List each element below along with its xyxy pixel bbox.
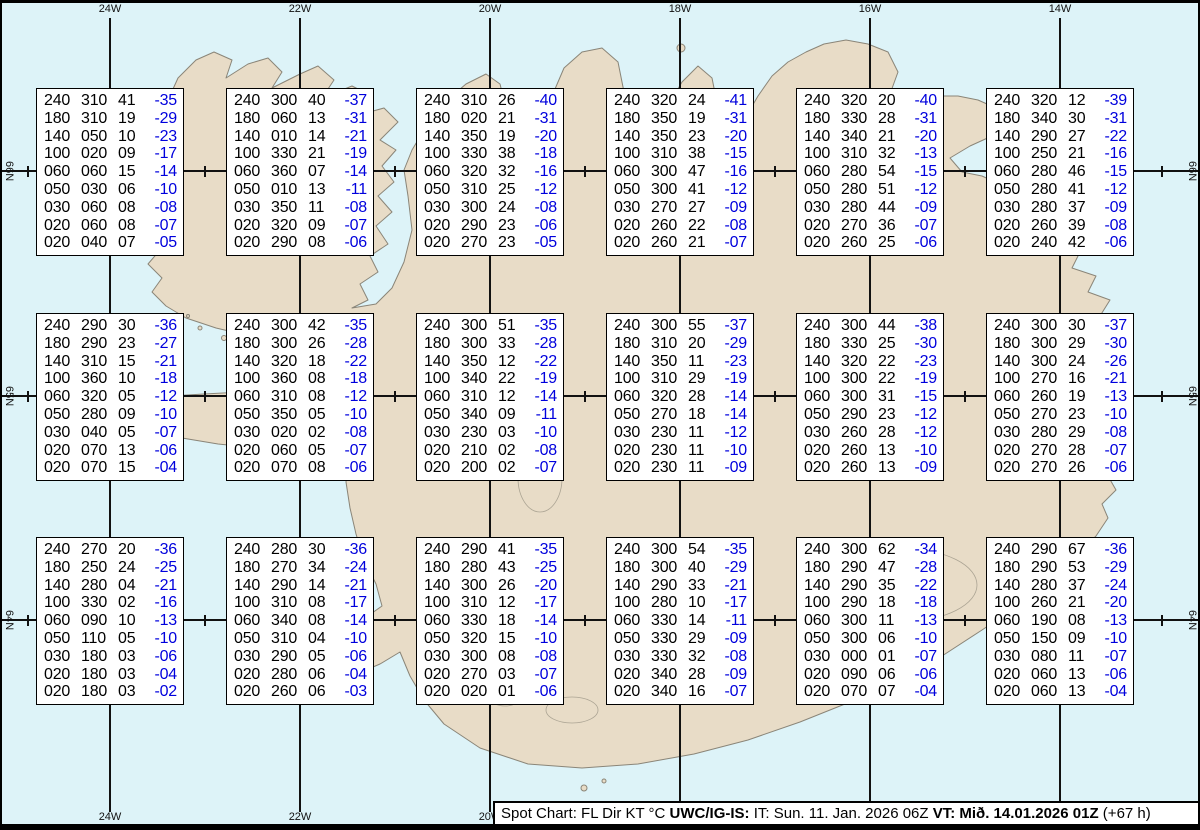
fl-value: 180 bbox=[234, 335, 263, 353]
dir-value: 310 bbox=[271, 630, 300, 648]
dir-value: 230 bbox=[651, 459, 680, 477]
dir-value: 300 bbox=[1031, 335, 1060, 353]
fl-value: 240 bbox=[614, 92, 643, 110]
level-row: 18033028-31 bbox=[804, 110, 937, 128]
temp-value: -18 bbox=[906, 594, 937, 612]
dir-value: 290 bbox=[271, 577, 300, 595]
fl-value: 020 bbox=[424, 683, 453, 701]
temp-value: -11 bbox=[526, 406, 557, 424]
fl-value: 020 bbox=[424, 217, 453, 235]
kt-value: 08 bbox=[308, 234, 328, 252]
level-row: 02032009-07 bbox=[234, 217, 367, 235]
island bbox=[602, 779, 606, 783]
kt-value: 21 bbox=[1068, 594, 1088, 612]
dir-value: 330 bbox=[81, 594, 110, 612]
kt-value: 05 bbox=[118, 424, 138, 442]
fl-value: 240 bbox=[424, 317, 453, 335]
latitude-label-right: 65N bbox=[1185, 381, 1198, 411]
dir-value: 320 bbox=[841, 353, 870, 371]
level-row: 14035011-23 bbox=[614, 353, 747, 371]
level-row: 10026021-20 bbox=[994, 594, 1127, 612]
temp-value: -06 bbox=[1096, 666, 1127, 684]
fl-value: 240 bbox=[614, 317, 643, 335]
level-row: 02026013-09 bbox=[804, 459, 937, 477]
temp-value: -35 bbox=[336, 317, 367, 335]
dir-value: 020 bbox=[81, 145, 110, 163]
dir-value: 000 bbox=[841, 648, 870, 666]
dir-value: 060 bbox=[81, 199, 110, 217]
kt-value: 03 bbox=[498, 424, 518, 442]
island bbox=[581, 785, 587, 791]
kt-value: 32 bbox=[878, 145, 898, 163]
temp-value: -36 bbox=[336, 541, 367, 559]
fl-value: 140 bbox=[804, 577, 833, 595]
fl-value: 140 bbox=[234, 128, 263, 146]
fl-value: 100 bbox=[234, 370, 263, 388]
fl-value: 020 bbox=[44, 442, 73, 460]
kt-value: 22 bbox=[878, 353, 898, 371]
kt-value: 20 bbox=[118, 541, 138, 559]
fl-value: 030 bbox=[994, 648, 1023, 666]
level-row: 14035019-20 bbox=[424, 128, 557, 146]
fl-value: 030 bbox=[614, 199, 643, 217]
kt-value: 01 bbox=[498, 683, 518, 701]
level-row: 02023011-09 bbox=[614, 459, 747, 477]
level-row: 02007008-06 bbox=[234, 459, 367, 477]
dir-value: 330 bbox=[651, 612, 680, 630]
fl-value: 100 bbox=[994, 370, 1023, 388]
level-row: 10036008-18 bbox=[234, 370, 367, 388]
level-row: 24030030-37 bbox=[994, 317, 1127, 335]
temp-value: -08 bbox=[526, 648, 557, 666]
kt-value: 09 bbox=[118, 145, 138, 163]
fl-value: 020 bbox=[804, 217, 833, 235]
fl-value: 050 bbox=[44, 181, 73, 199]
kt-value: 10 bbox=[118, 128, 138, 146]
dir-value: 070 bbox=[81, 459, 110, 477]
fl-value: 240 bbox=[44, 541, 73, 559]
graticule-cross-tick bbox=[770, 615, 781, 626]
level-row: 18030033-28 bbox=[424, 335, 557, 353]
temp-value: -10 bbox=[146, 406, 177, 424]
kt-value: 06 bbox=[118, 181, 138, 199]
fl-value: 240 bbox=[234, 92, 263, 110]
wind-temp-box-r2c2: 24030042-3518030026-2814032018-221003600… bbox=[226, 313, 374, 481]
level-row: 06028046-15 bbox=[994, 163, 1127, 181]
dir-value: 230 bbox=[651, 442, 680, 460]
wind-temp-box-r3c6: 24029067-3618029053-2914028037-241002602… bbox=[986, 537, 1134, 705]
kt-value: 11 bbox=[688, 424, 708, 442]
fl-value: 140 bbox=[44, 128, 73, 146]
level-row: 24032024-41 bbox=[614, 92, 747, 110]
latitude-label-left: 64N bbox=[2, 605, 15, 635]
temp-value: -12 bbox=[906, 424, 937, 442]
fl-value: 030 bbox=[994, 424, 1023, 442]
fl-value: 050 bbox=[424, 630, 453, 648]
fl-value: 060 bbox=[994, 388, 1023, 406]
wind-temp-box-r2c1: 24029030-3618029023-2714031015-211003601… bbox=[36, 313, 184, 481]
level-row: 02006005-07 bbox=[234, 442, 367, 460]
level-row: 24032020-40 bbox=[804, 92, 937, 110]
kt-value: 29 bbox=[1068, 335, 1088, 353]
kt-value: 34 bbox=[308, 559, 328, 577]
level-row: 03033032-08 bbox=[614, 648, 747, 666]
wind-temp-box-r1c1: 24031041-3518031019-2914005010-231000200… bbox=[36, 88, 184, 256]
temp-value: -17 bbox=[526, 594, 557, 612]
level-row: 05027023-10 bbox=[994, 406, 1127, 424]
dir-value: 250 bbox=[81, 559, 110, 577]
level-row: 03030024-08 bbox=[424, 199, 557, 217]
wind-temp-box-r2c3: 24030051-3518030033-2814035012-221003402… bbox=[416, 313, 564, 481]
dir-value: 310 bbox=[651, 370, 680, 388]
dir-value: 350 bbox=[651, 128, 680, 146]
kt-value: 08 bbox=[308, 388, 328, 406]
temp-value: -21 bbox=[336, 577, 367, 595]
level-row: 02002001-06 bbox=[424, 683, 557, 701]
level-row: 02027026-06 bbox=[994, 459, 1127, 477]
kt-value: 67 bbox=[1068, 541, 1088, 559]
dir-value: 350 bbox=[271, 199, 300, 217]
level-row: 03029005-06 bbox=[234, 648, 367, 666]
graticule-cross-tick bbox=[580, 615, 591, 626]
dir-value: 300 bbox=[271, 92, 300, 110]
fl-value: 140 bbox=[804, 353, 833, 371]
temp-value: -28 bbox=[336, 335, 367, 353]
dir-value: 340 bbox=[271, 612, 300, 630]
fl-value: 180 bbox=[234, 559, 263, 577]
level-row: 02027003-07 bbox=[424, 666, 557, 684]
graticule-cross-tick bbox=[580, 166, 591, 177]
dir-value: 300 bbox=[651, 163, 680, 181]
temp-value: -05 bbox=[526, 234, 557, 252]
level-row: 02034016-07 bbox=[614, 683, 747, 701]
dir-value: 290 bbox=[841, 594, 870, 612]
fl-value: 060 bbox=[614, 163, 643, 181]
level-row: 24030054-35 bbox=[614, 541, 747, 559]
kt-value: 21 bbox=[1068, 145, 1088, 163]
dir-value: 330 bbox=[651, 630, 680, 648]
kt-value: 28 bbox=[688, 666, 708, 684]
temp-value: -07 bbox=[1096, 648, 1127, 666]
fl-value: 060 bbox=[44, 612, 73, 630]
dir-value: 260 bbox=[841, 442, 870, 460]
fl-value: 020 bbox=[614, 683, 643, 701]
kt-value: 42 bbox=[1068, 234, 1088, 252]
kt-value: 13 bbox=[878, 459, 898, 477]
level-row: 03006008-08 bbox=[44, 199, 177, 217]
level-row: 18028043-25 bbox=[424, 559, 557, 577]
kt-value: 14 bbox=[688, 612, 708, 630]
level-row: 03028044-09 bbox=[804, 199, 937, 217]
kt-value: 14 bbox=[308, 128, 328, 146]
dir-value: 260 bbox=[271, 683, 300, 701]
dir-value: 300 bbox=[651, 559, 680, 577]
fl-value: 020 bbox=[804, 234, 833, 252]
temp-value: -30 bbox=[1096, 335, 1127, 353]
level-row: 02026022-08 bbox=[614, 217, 747, 235]
dir-value: 340 bbox=[461, 370, 490, 388]
dir-value: 330 bbox=[461, 612, 490, 630]
level-row: 03018003-06 bbox=[44, 648, 177, 666]
temp-value: -07 bbox=[336, 217, 367, 235]
temp-value: -17 bbox=[716, 594, 747, 612]
kt-value: 39 bbox=[1068, 217, 1088, 235]
level-row: 02018003-02 bbox=[44, 683, 177, 701]
kt-value: 30 bbox=[118, 317, 138, 335]
kt-value: 08 bbox=[1068, 612, 1088, 630]
fl-value: 140 bbox=[994, 353, 1023, 371]
dir-value: 310 bbox=[841, 145, 870, 163]
latitude-label-left: 65N bbox=[2, 381, 15, 411]
kt-value: 41 bbox=[1068, 181, 1088, 199]
lead-time-text: (+67 h) bbox=[1099, 805, 1151, 822]
level-row: 02018003-04 bbox=[44, 666, 177, 684]
temp-value: -29 bbox=[1096, 559, 1127, 577]
temp-value: -10 bbox=[336, 630, 367, 648]
kt-value: 23 bbox=[498, 234, 518, 252]
kt-value: 18 bbox=[308, 353, 328, 371]
temp-value: -07 bbox=[146, 424, 177, 442]
fl-value: 060 bbox=[804, 388, 833, 406]
dir-value: 210 bbox=[461, 442, 490, 460]
temp-value: -12 bbox=[716, 424, 747, 442]
level-row: 18031020-29 bbox=[614, 335, 747, 353]
temp-value: -23 bbox=[716, 353, 747, 371]
temp-value: -29 bbox=[716, 559, 747, 577]
level-row: 02007013-06 bbox=[44, 442, 177, 460]
level-row: 10033002-16 bbox=[44, 594, 177, 612]
kt-value: 19 bbox=[688, 110, 708, 128]
fl-value: 030 bbox=[234, 424, 263, 442]
temp-value: -10 bbox=[146, 181, 177, 199]
level-row: 24030051-35 bbox=[424, 317, 557, 335]
fl-value: 050 bbox=[614, 630, 643, 648]
wind-temp-box-r1c4: 24032024-4118035019-3114035023-201003103… bbox=[606, 88, 754, 256]
dir-value: 060 bbox=[81, 163, 110, 181]
fl-value: 020 bbox=[234, 683, 263, 701]
level-row: 02006013-04 bbox=[994, 683, 1127, 701]
kt-value: 44 bbox=[878, 317, 898, 335]
temp-value: -07 bbox=[336, 442, 367, 460]
dir-value: 260 bbox=[1031, 388, 1060, 406]
temp-value: -07 bbox=[526, 666, 557, 684]
level-row: 03000001-07 bbox=[804, 648, 937, 666]
kt-value: 24 bbox=[688, 92, 708, 110]
dir-value: 070 bbox=[841, 683, 870, 701]
temp-value: -04 bbox=[146, 459, 177, 477]
fl-value: 180 bbox=[994, 559, 1023, 577]
fl-value: 020 bbox=[234, 217, 263, 235]
dir-value: 060 bbox=[271, 110, 300, 128]
level-row: 14031015-21 bbox=[44, 353, 177, 371]
temp-value: -10 bbox=[336, 406, 367, 424]
wind-temp-box-r2c4: 24030055-3718031020-2914035011-231003102… bbox=[606, 313, 754, 481]
temp-value: -06 bbox=[1096, 459, 1127, 477]
level-row: 06009010-13 bbox=[44, 612, 177, 630]
level-row: 14035012-22 bbox=[424, 353, 557, 371]
temp-value: -11 bbox=[716, 612, 747, 630]
dir-value: 300 bbox=[461, 577, 490, 595]
temp-value: -19 bbox=[906, 370, 937, 388]
dir-value: 280 bbox=[1031, 199, 1060, 217]
fl-value: 140 bbox=[234, 577, 263, 595]
fl-value: 180 bbox=[994, 335, 1023, 353]
level-row: 05027018-14 bbox=[614, 406, 747, 424]
kt-value: 37 bbox=[1068, 577, 1088, 595]
kt-value: 23 bbox=[688, 128, 708, 146]
island bbox=[187, 315, 190, 318]
spot-chart-stage: 24W24W22W22W20W20W18W18W16W16W14W14W66N6… bbox=[0, 0, 1200, 830]
fl-value: 140 bbox=[994, 577, 1023, 595]
temp-value: -20 bbox=[526, 128, 557, 146]
kt-value: 02 bbox=[498, 442, 518, 460]
kt-value: 23 bbox=[498, 217, 518, 235]
temp-value: -14 bbox=[336, 612, 367, 630]
kt-value: 31 bbox=[878, 388, 898, 406]
level-row: 06033018-14 bbox=[424, 612, 557, 630]
wind-temp-box-r3c1: 24027020-3618025024-2514028004-211003300… bbox=[36, 537, 184, 705]
fl-value: 100 bbox=[424, 594, 453, 612]
dir-value: 280 bbox=[1031, 424, 1060, 442]
dir-value: 310 bbox=[461, 181, 490, 199]
kt-value: 08 bbox=[498, 648, 518, 666]
temp-value: -16 bbox=[716, 163, 747, 181]
fl-value: 240 bbox=[44, 317, 73, 335]
kt-value: 40 bbox=[688, 559, 708, 577]
level-row: 14032018-22 bbox=[234, 353, 367, 371]
kt-value: 08 bbox=[118, 217, 138, 235]
temp-value: -06 bbox=[1096, 234, 1127, 252]
fl-value: 240 bbox=[994, 92, 1023, 110]
dir-value: 330 bbox=[461, 145, 490, 163]
temp-value: -29 bbox=[146, 110, 177, 128]
level-row: 03004005-07 bbox=[44, 424, 177, 442]
level-row: 14029027-22 bbox=[994, 128, 1127, 146]
kt-value: 04 bbox=[308, 630, 328, 648]
fl-value: 020 bbox=[614, 217, 643, 235]
temp-value: -09 bbox=[716, 666, 747, 684]
fl-value: 050 bbox=[994, 181, 1023, 199]
dir-value: 350 bbox=[651, 110, 680, 128]
dir-value: 240 bbox=[1031, 234, 1060, 252]
fl-value: 060 bbox=[424, 612, 453, 630]
kt-value: 26 bbox=[498, 577, 518, 595]
level-row: 14029014-21 bbox=[234, 577, 367, 595]
dir-value: 320 bbox=[651, 92, 680, 110]
wind-temp-box-r1c6: 24032012-3918034030-3114029027-221002502… bbox=[986, 88, 1134, 256]
kt-value: 20 bbox=[688, 335, 708, 353]
dir-value: 330 bbox=[841, 110, 870, 128]
level-row: 24030044-38 bbox=[804, 317, 937, 335]
fl-value: 240 bbox=[804, 92, 833, 110]
level-row: 06028054-15 bbox=[804, 163, 937, 181]
level-row: 24028030-36 bbox=[234, 541, 367, 559]
level-row: 02029023-06 bbox=[424, 217, 557, 235]
temp-value: -35 bbox=[526, 541, 557, 559]
graticule-cross-tick bbox=[960, 391, 971, 402]
temp-value: -31 bbox=[906, 110, 937, 128]
level-row: 03023003-10 bbox=[424, 424, 557, 442]
fl-value: 180 bbox=[994, 110, 1023, 128]
kt-value: 24 bbox=[498, 199, 518, 217]
dir-value: 300 bbox=[651, 317, 680, 335]
level-row: 18033025-30 bbox=[804, 335, 937, 353]
temp-value: -10 bbox=[906, 442, 937, 460]
island bbox=[198, 326, 202, 330]
kt-value: 35 bbox=[878, 577, 898, 595]
level-row: 18031019-29 bbox=[44, 110, 177, 128]
fl-value: 020 bbox=[614, 666, 643, 684]
level-row: 10031032-13 bbox=[804, 145, 937, 163]
fl-value: 020 bbox=[994, 217, 1023, 235]
fl-value: 020 bbox=[994, 442, 1023, 460]
temp-value: -16 bbox=[146, 594, 177, 612]
fl-value: 140 bbox=[614, 128, 643, 146]
kt-value: 22 bbox=[878, 370, 898, 388]
dir-value: 270 bbox=[841, 217, 870, 235]
fl-value: 050 bbox=[234, 406, 263, 424]
graticule-cross-tick bbox=[580, 391, 591, 402]
dir-value: 020 bbox=[461, 683, 490, 701]
dir-value: 180 bbox=[81, 666, 110, 684]
dir-value: 320 bbox=[651, 388, 680, 406]
dir-value: 290 bbox=[271, 648, 300, 666]
temp-value: -23 bbox=[906, 353, 937, 371]
temp-value: -27 bbox=[146, 335, 177, 353]
level-row: 24029030-36 bbox=[44, 317, 177, 335]
fl-value: 140 bbox=[614, 353, 643, 371]
temp-value: -12 bbox=[336, 388, 367, 406]
level-row: 03028029-08 bbox=[994, 424, 1127, 442]
level-row: 06033014-11 bbox=[614, 612, 747, 630]
fl-value: 180 bbox=[614, 335, 643, 353]
kt-value: 01 bbox=[878, 648, 898, 666]
level-row: 03026028-12 bbox=[804, 424, 937, 442]
temp-value: -41 bbox=[716, 92, 747, 110]
fl-value: 180 bbox=[614, 559, 643, 577]
level-row: 06006015-14 bbox=[44, 163, 177, 181]
chart-info-bar: Spot Chart: FL Dir KT °C UWC/IG-IS: IT: … bbox=[493, 801, 1198, 824]
fl-value: 020 bbox=[804, 683, 833, 701]
fl-value: 020 bbox=[614, 459, 643, 477]
temp-value: -17 bbox=[336, 594, 367, 612]
level-row: 18030026-28 bbox=[234, 335, 367, 353]
fl-value: 180 bbox=[424, 335, 453, 353]
kt-value: 12 bbox=[498, 388, 518, 406]
temp-value: -03 bbox=[336, 683, 367, 701]
temp-value: -08 bbox=[716, 217, 747, 235]
dir-value: 330 bbox=[271, 145, 300, 163]
longitude-label-bottom: 22W bbox=[285, 811, 315, 823]
level-row: 05029023-12 bbox=[804, 406, 937, 424]
fl-value: 240 bbox=[994, 317, 1023, 335]
level-row: 03008011-07 bbox=[994, 648, 1127, 666]
temp-value: -07 bbox=[906, 217, 937, 235]
fl-value: 050 bbox=[424, 181, 453, 199]
dir-value: 010 bbox=[271, 181, 300, 199]
level-row: 02024042-06 bbox=[994, 234, 1127, 252]
kt-value: 54 bbox=[688, 541, 708, 559]
dir-value: 290 bbox=[841, 406, 870, 424]
graticule-cross-tick bbox=[200, 615, 211, 626]
graticule-cross-tick bbox=[23, 391, 34, 402]
temp-value: -08 bbox=[336, 424, 367, 442]
fl-value: 030 bbox=[424, 424, 453, 442]
kt-value: 40 bbox=[308, 92, 328, 110]
dir-value: 320 bbox=[841, 92, 870, 110]
latitude-label-right: 64N bbox=[1185, 605, 1198, 635]
fl-value: 240 bbox=[804, 317, 833, 335]
